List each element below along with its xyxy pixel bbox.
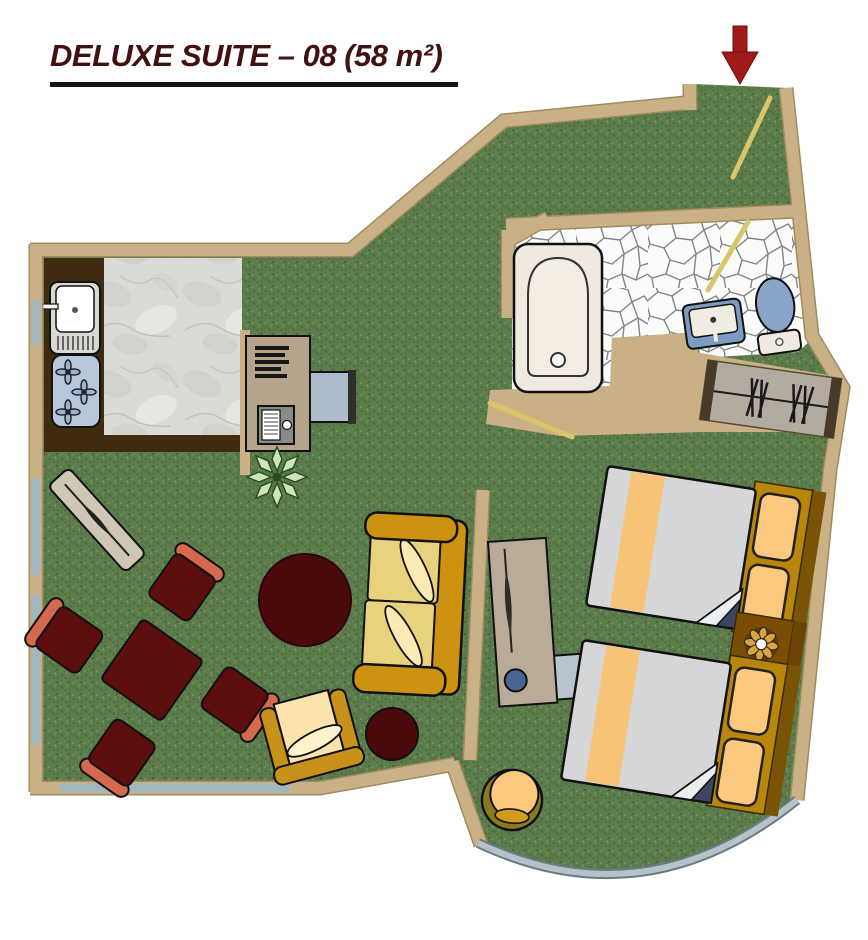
pouf [366,708,418,760]
bathtub [514,244,602,392]
pillow [727,666,777,735]
desk-chair [308,372,352,422]
pillow [752,492,802,561]
floorplan-page: DELUXE SUITE – 08 (58 m²) [0,0,868,940]
entrance-arrow [722,26,758,84]
round-rug [259,554,351,646]
stove [52,355,100,427]
kitchenette [40,258,250,475]
sofa [353,512,468,697]
kitchen-sink [40,282,100,354]
washbasin [682,298,746,350]
floorplan-svg [0,0,868,940]
marble-floor [104,258,242,435]
computer [258,406,294,444]
pillow [715,737,765,806]
plant [247,447,307,507]
